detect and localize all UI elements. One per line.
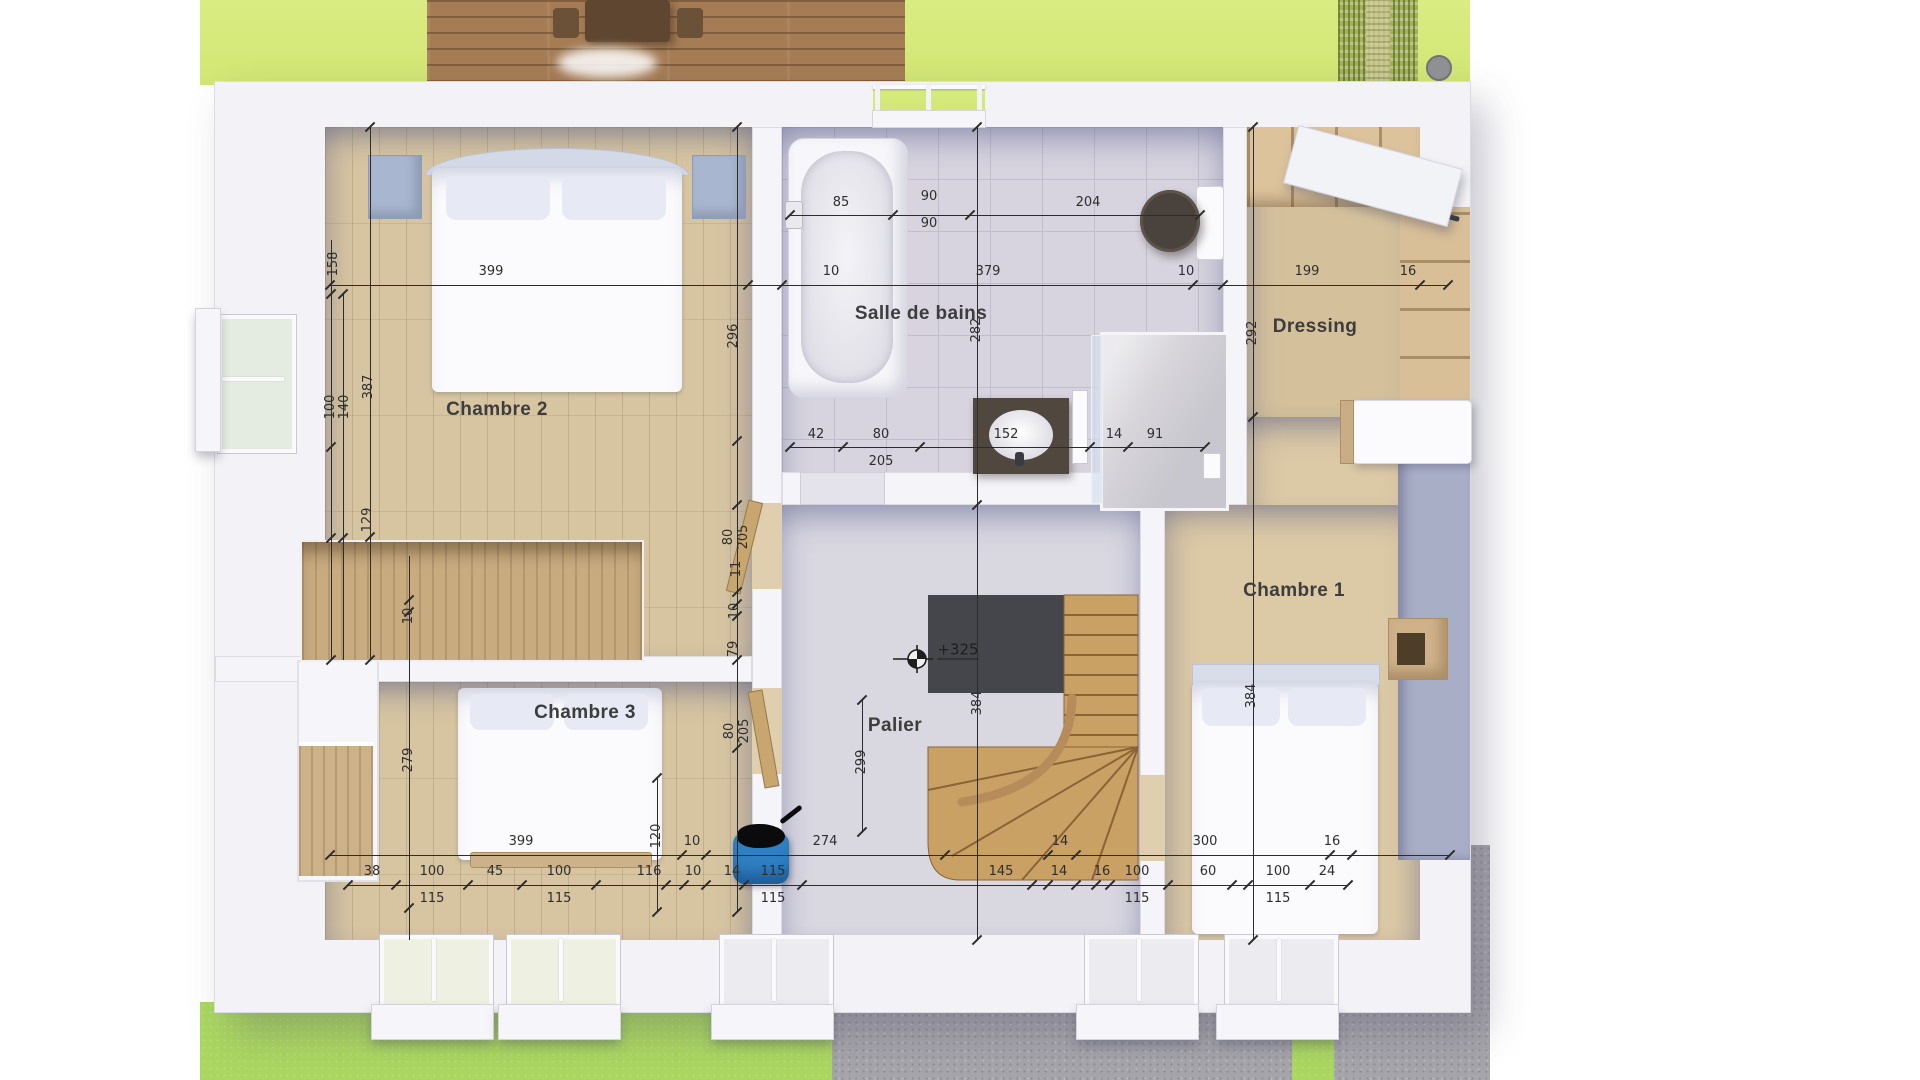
window-mullion (1137, 939, 1141, 1001)
dimension-label: 11 (730, 561, 744, 578)
dimension-label: 38 (364, 865, 381, 879)
chambre2-wardrobe (300, 540, 644, 662)
room-label-palier: Palier (868, 715, 922, 737)
level-marker-value: +325 (937, 641, 978, 660)
dimension-label: 158 (327, 252, 341, 277)
dimension-label: 116 (637, 865, 662, 879)
dimension-line (331, 240, 332, 660)
window-mullion (772, 939, 776, 1001)
dimension-label: 14 (724, 865, 741, 879)
dimension-label: 80 (722, 529, 736, 546)
dimension-label: 80 (873, 428, 890, 442)
dimension-label: 140 (338, 395, 352, 420)
dimension-line (330, 855, 1450, 856)
shower (1100, 332, 1229, 511)
chambre3-window (380, 935, 493, 1013)
dimension-line (330, 285, 1448, 286)
dimension-label: 10 (685, 865, 702, 879)
window-sill (499, 1005, 620, 1039)
dimension-label: 16 (1400, 265, 1417, 279)
chambre2-window (218, 315, 288, 445)
window-mullion (559, 939, 563, 1001)
terrace-chair (677, 8, 703, 38)
dimension-label: 399 (479, 265, 504, 279)
nightstand-opening (1397, 633, 1425, 665)
dimension-label: 16 (1094, 865, 1111, 879)
sink-faucet-icon (1015, 452, 1024, 466)
dimension-label: 80 (723, 723, 737, 740)
dimension-label: 90 (921, 217, 938, 231)
window-mullion (1277, 939, 1281, 1001)
shower-glass (1091, 335, 1103, 504)
dimension-label: 115 (1125, 892, 1150, 906)
dimension-label: 274 (813, 835, 838, 849)
window-sill (1077, 1005, 1198, 1039)
window-mullion (222, 377, 284, 381)
window-mullion (432, 939, 436, 1001)
dimension-label: 120 (650, 824, 664, 849)
chambre1-window (1225, 935, 1338, 1013)
hedge-core (1366, 0, 1390, 85)
window-sill (372, 1005, 493, 1039)
dimension-label: 300 (1193, 835, 1218, 849)
dimension-line (977, 127, 978, 940)
dimension-label: 379 (976, 265, 1001, 279)
dimension-line (790, 215, 1200, 216)
dimension-label: 199 (1295, 265, 1320, 279)
dimension-label: 205 (738, 719, 752, 744)
terrace-table (585, 0, 670, 42)
balcony-post (926, 85, 931, 111)
dimension-label: 205 (869, 455, 894, 469)
dimension-line (1253, 127, 1254, 940)
dimension-label: 10 (823, 265, 840, 279)
balcony-post (977, 85, 982, 111)
wall-radiator (1072, 390, 1088, 464)
cat-icon (737, 824, 785, 848)
dimension-label: 14 (1051, 865, 1068, 879)
dimension-label: 115 (420, 892, 445, 906)
toilet-tank (1196, 186, 1224, 260)
chambre1-wardrobe-side (1340, 400, 1354, 464)
palier-window (720, 935, 833, 1013)
dimension-label: 100 (547, 865, 572, 879)
dimension-label: 145 (989, 865, 1014, 879)
room-label-salle-de-bains: Salle de bains (855, 303, 987, 325)
room-label-chambre3: Chambre 3 (534, 702, 636, 724)
grass-top-left (200, 0, 427, 85)
dimension-label: 24 (1319, 865, 1336, 879)
pillow (562, 176, 666, 220)
dimension-label: 129 (361, 508, 375, 533)
dimension-label: 205 (737, 525, 751, 550)
chambre3-window (507, 935, 620, 1013)
wood-terrace (427, 0, 905, 85)
bathtub-basin (801, 151, 893, 383)
balcony-door (873, 85, 985, 127)
dimension-label: 16 (1324, 835, 1341, 849)
room-label-dressing: Dressing (1273, 316, 1358, 338)
toilet-bowl (1140, 190, 1200, 252)
dimension-label: 100 (324, 395, 338, 420)
dimension-label: 14 (1052, 835, 1069, 849)
window-sill (1217, 1005, 1338, 1039)
dimension-line (348, 885, 1348, 886)
chambre1-door-opening (1140, 775, 1165, 861)
shower-shelf (1203, 453, 1221, 479)
chimney-cap-icon (1426, 55, 1452, 81)
dimension-label: 204 (1076, 196, 1101, 210)
dimension-label: 384 (971, 691, 985, 716)
chambre2-bed (432, 168, 682, 392)
dimension-label: 279 (402, 748, 416, 773)
dimension-label: 10 (728, 603, 742, 620)
dimension-label: 115 (547, 892, 572, 906)
dimension-label: 115 (1266, 892, 1291, 906)
dimension-label: 60 (1200, 865, 1217, 879)
closet-shelf-edge (299, 742, 373, 746)
dimension-label: 299 (855, 750, 869, 775)
dimension-label: 296 (727, 324, 741, 349)
chambre1-window (1085, 935, 1198, 1013)
closet-shelf (299, 746, 373, 876)
dressing-side-shelves (1400, 207, 1470, 407)
dimension-label: 292 (1246, 321, 1260, 346)
dimension-label: 90 (921, 190, 938, 204)
dimension-label: 85 (833, 196, 850, 210)
window-sill (196, 309, 220, 451)
terrace-chair (553, 8, 579, 38)
dimension-label: 14 (1106, 428, 1123, 442)
dimension-label: 91 (1147, 428, 1164, 442)
dimension-label: 152 (994, 428, 1019, 442)
dimension-line (343, 294, 344, 660)
window-glass (218, 315, 296, 453)
dimension-label: 384 (1245, 684, 1259, 709)
dimension-label: 100 (1125, 865, 1150, 879)
balcony-post (875, 85, 880, 111)
bathroom-door-opening (800, 472, 885, 505)
dimension-label: 115 (761, 892, 786, 906)
dimension-label: 42 (808, 428, 825, 442)
dimension-label: 79 (727, 641, 741, 658)
hedge (1338, 0, 1418, 85)
floorplan-canvas: Chambre 2 Salle de bains Dressing Chambr… (0, 0, 1920, 1080)
balcony-threshold (873, 111, 985, 127)
dimension-label: 10 (1178, 265, 1195, 279)
chambre3-closet-nook (297, 660, 379, 882)
chambre1-nightstand (1388, 618, 1448, 680)
dimension-label: 100 (1266, 865, 1291, 879)
dimension-label: 45 (487, 865, 504, 879)
bathtub (788, 138, 908, 398)
dimension-label: 10 (402, 608, 416, 625)
staircase (922, 590, 1142, 885)
dimension-label: 115 (761, 865, 786, 879)
dimension-label: 100 (420, 865, 445, 879)
pillow (446, 176, 550, 220)
chambre1-wardrobe (1352, 400, 1472, 464)
dimension-label: 10 (684, 835, 701, 849)
dimension-label: 399 (509, 835, 534, 849)
pillow (1288, 688, 1366, 726)
room-label-chambre1: Chambre 1 (1243, 580, 1345, 602)
terrace-plant (557, 48, 657, 78)
window-sill (712, 1005, 833, 1039)
chambre2-nightstand-left (368, 155, 422, 219)
dimension-label: 387 (362, 375, 376, 400)
pillow (1202, 688, 1280, 726)
dimension-line (790, 447, 1205, 448)
room-label-chambre2: Chambre 2 (446, 399, 548, 421)
dimension-line (737, 127, 738, 912)
vanity-counter (973, 398, 1069, 474)
